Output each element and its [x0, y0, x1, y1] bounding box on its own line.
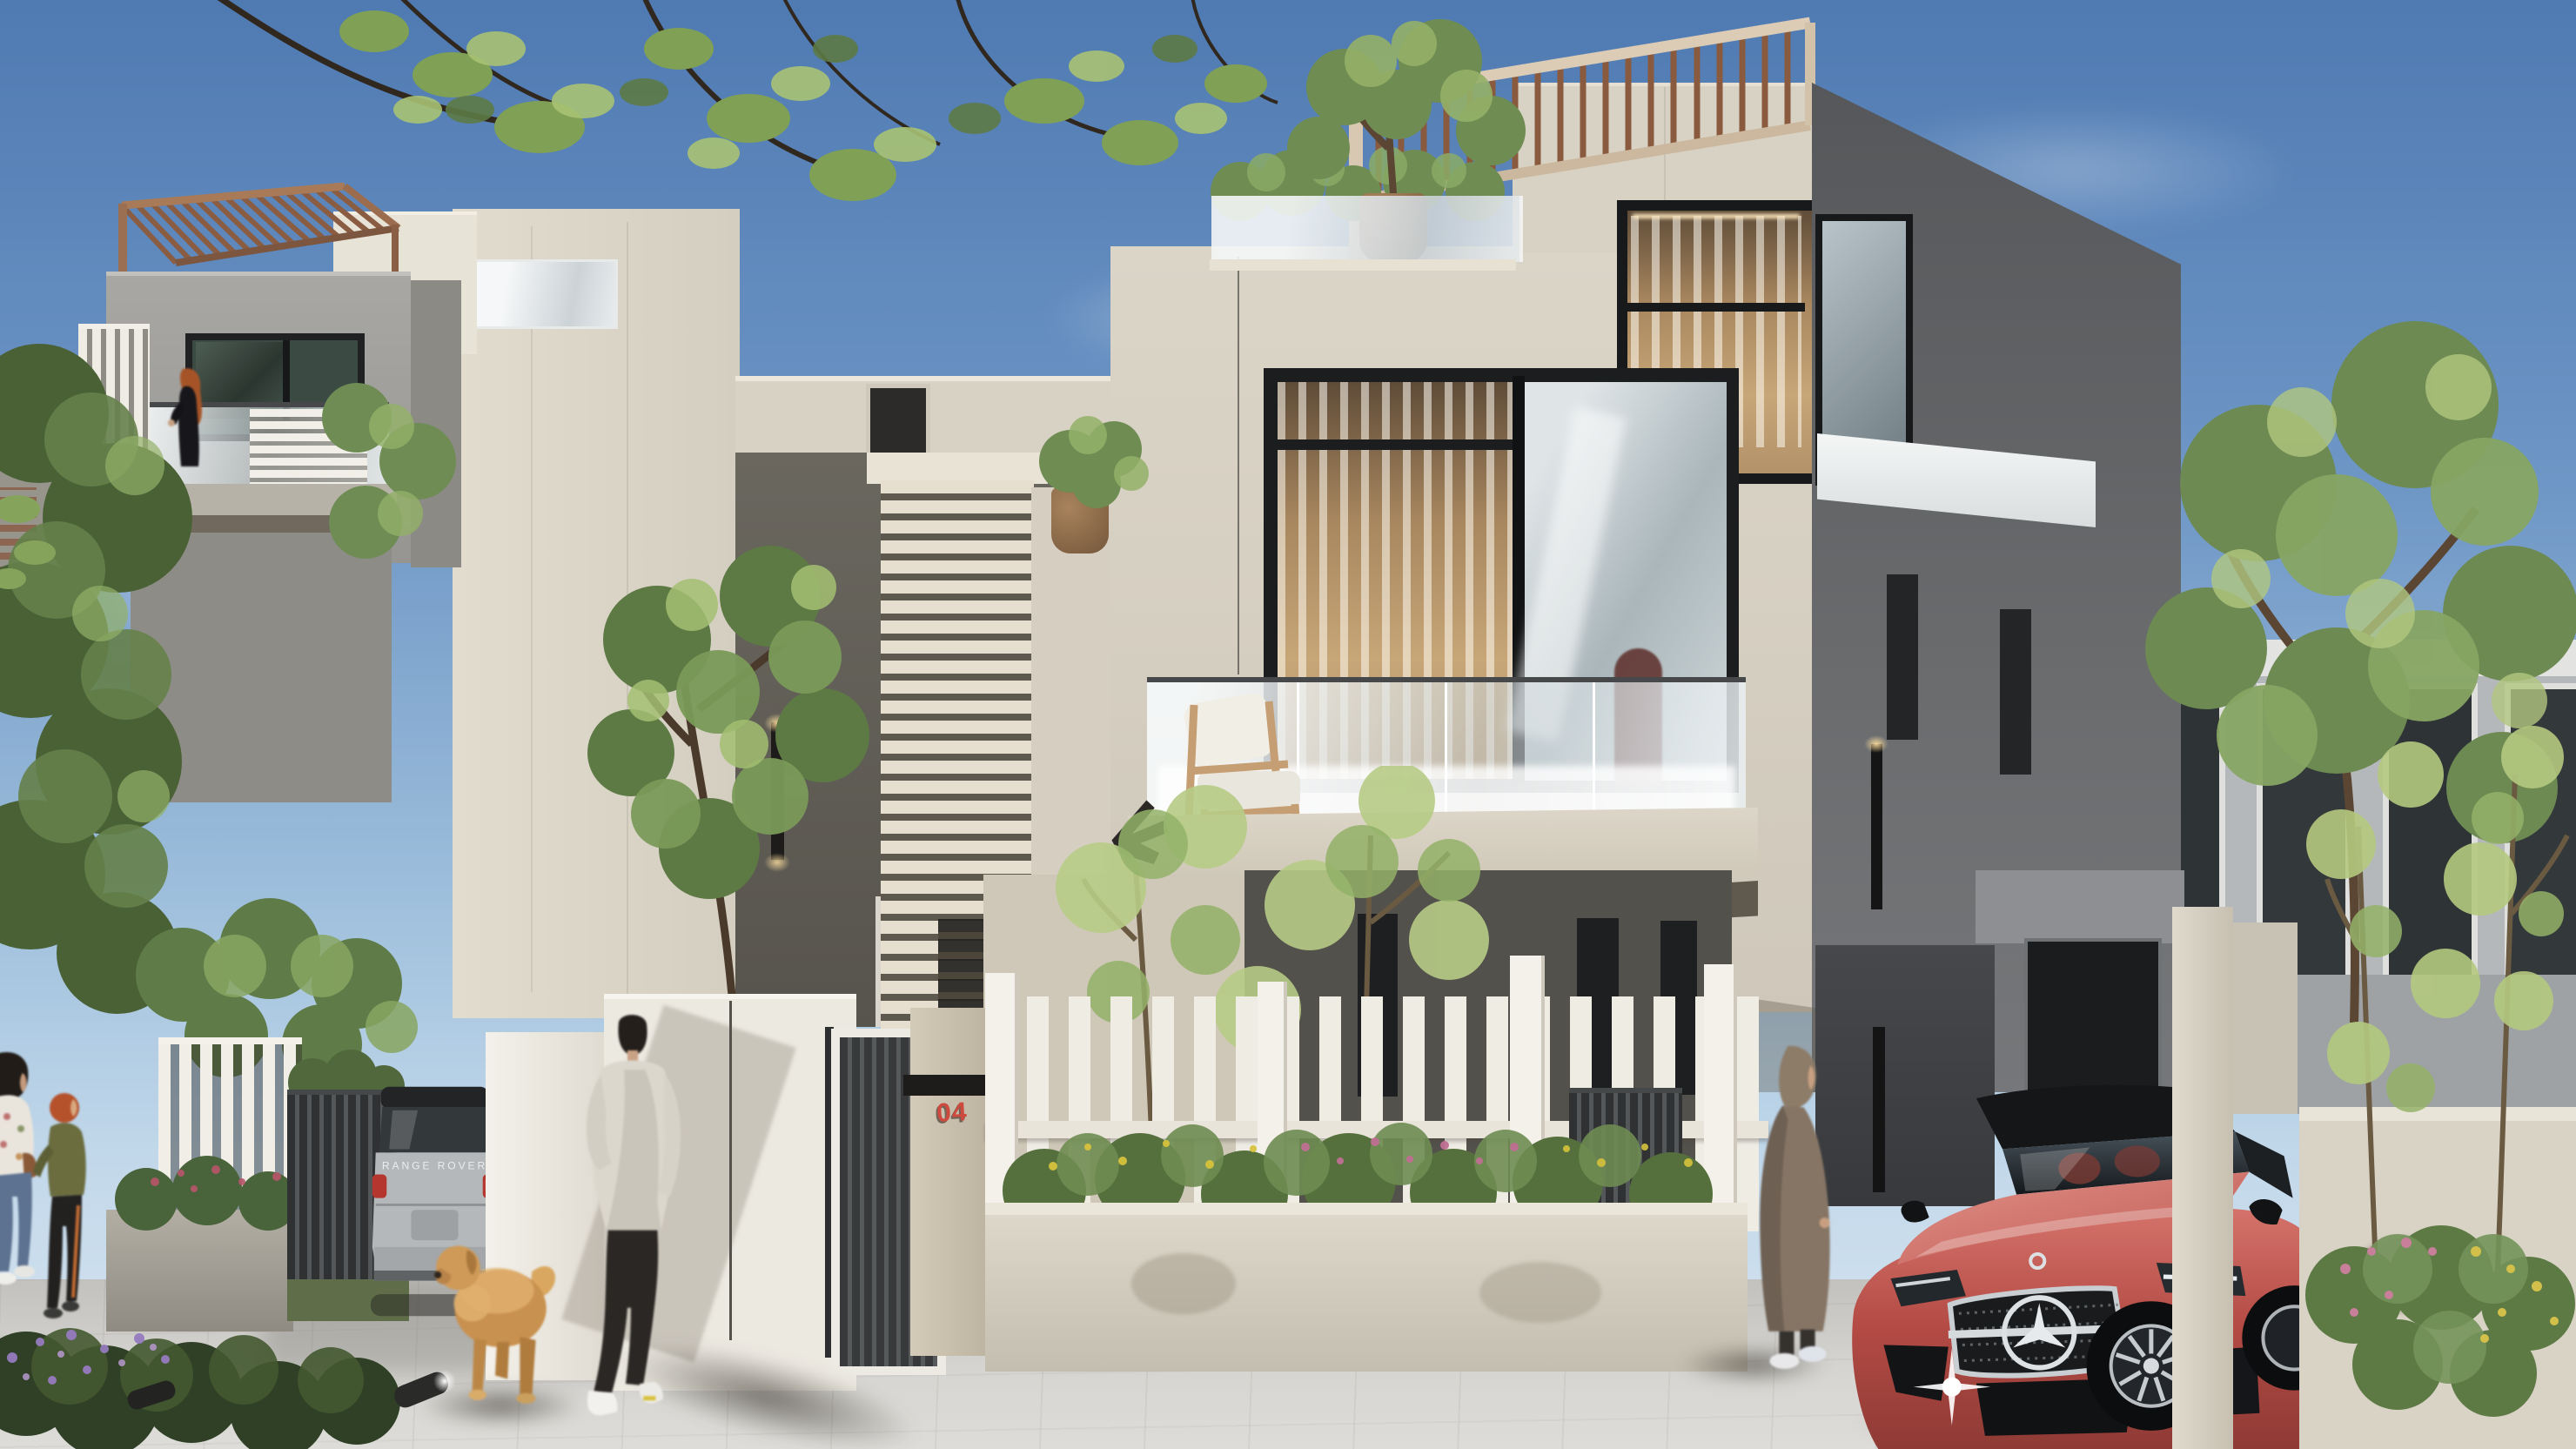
house-number-pillar: [910, 1008, 994, 1356]
hair: [618, 1015, 647, 1056]
house-number-text: 04: [936, 1097, 968, 1128]
tail-light: [372, 1175, 386, 1198]
wall-sconce: [1871, 744, 1882, 909]
foreground-shrubs: [0, 1297, 400, 1449]
man-walking: [566, 1008, 698, 1436]
planter-stain: [1131, 1253, 1236, 1314]
trousers: [594, 1231, 658, 1394]
sconce-glow: [1864, 735, 1888, 753]
middle-tree: [553, 483, 905, 1044]
suv-tailgate-text: RANGE ROVER: [382, 1160, 487, 1172]
red-mercedes-sedan: [1845, 1076, 2322, 1449]
spotlight-glint: [433, 1370, 456, 1392]
dog-leg: [495, 1342, 509, 1379]
dog-leg: [520, 1337, 535, 1399]
planter-stain: [1479, 1262, 1601, 1323]
side-narrow-window: [1887, 574, 1918, 740]
right-planter-flowers: [2302, 1191, 2576, 1443]
foreground-pillar: [2172, 907, 2233, 1449]
house-number: 04: [913, 1097, 991, 1130]
woman-in-headscarf: [1742, 1036, 1852, 1377]
mother: [0, 1052, 37, 1285]
upper-window-ceiling-light: [1633, 214, 1800, 218]
mirror-left: [1902, 1201, 1929, 1223]
upper-window-transom: [1627, 303, 1805, 312]
child: [33, 1093, 86, 1318]
wall-b-seam: [729, 1001, 732, 1340]
overhanging-branches: [191, 0, 1279, 453]
dog-chest: [453, 1285, 491, 1322]
suv-roof: [381, 1087, 489, 1109]
left-planter-plants: [103, 1138, 307, 1238]
dog-leg: [473, 1338, 486, 1397]
side-narrow-window: [2000, 609, 2031, 775]
balcony-window-transom: [1278, 439, 1513, 450]
front-planter: [985, 1203, 1748, 1372]
left-edge-leaves: [0, 474, 70, 605]
sneaker: [587, 1391, 617, 1415]
architectural-render-scene: \: [0, 0, 2576, 1449]
